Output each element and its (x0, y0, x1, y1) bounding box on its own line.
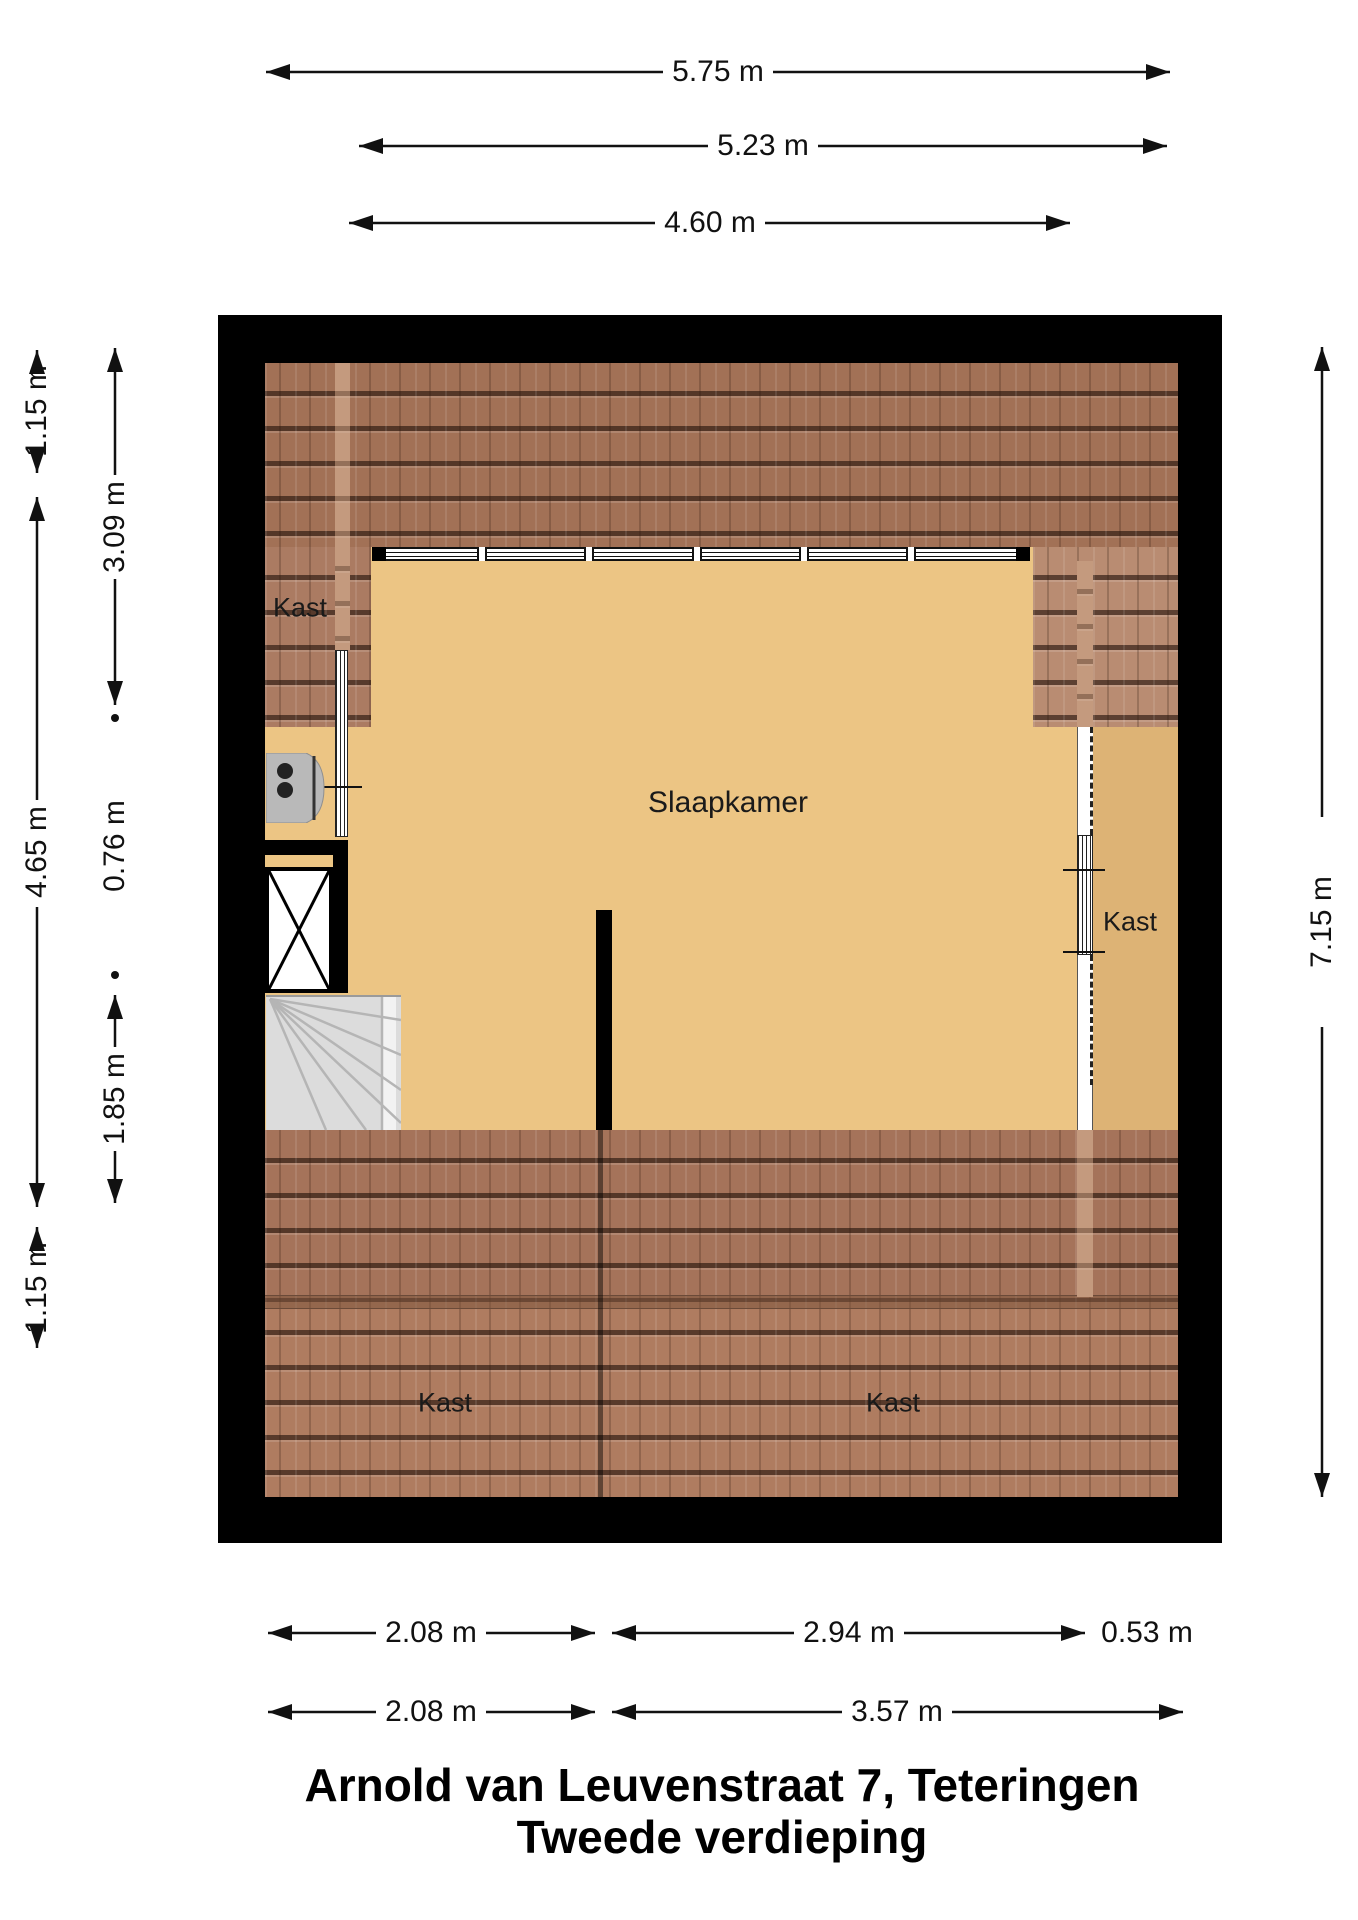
railing-divider (799, 547, 809, 561)
dim-label-bottom2-1: 2.08 m (385, 1695, 477, 1729)
left-dormer-strip (335, 363, 350, 650)
dim-dot (111, 714, 119, 722)
roof-left-closet (265, 547, 371, 727)
dim-label-left-inner-1: 3.09 m (98, 481, 132, 573)
railing-divider (584, 547, 594, 561)
dim-label-top-2: 5.23 m (717, 129, 809, 163)
railing-end-cap (372, 547, 386, 561)
wall-segment (333, 855, 348, 993)
roof-ridge-seam (265, 1295, 1178, 1309)
dim-label-bottom1-3: 0.53 m (1101, 1616, 1193, 1650)
right-window-dashed-bottom (1077, 955, 1093, 1085)
dim-label-left-inner-2: 0.76 m (98, 800, 132, 892)
staircase (266, 995, 401, 1130)
railing-divider (477, 547, 487, 561)
floorplan-page: Slaapkamer Kast Kast Kast Kast (0, 0, 1358, 1920)
railing-end-cap (1016, 547, 1030, 561)
room-label-closet-top-left: Kast (273, 593, 327, 624)
left-window-tick (322, 786, 362, 788)
dim-label-top-3: 4.60 m (664, 206, 756, 240)
dim-label-left-outer-2: 4.65 m (20, 806, 54, 898)
room-label-bedroom: Slaapkamer (648, 786, 808, 820)
sink (266, 753, 326, 823)
right-window-dashed-top (1077, 727, 1093, 835)
page-title-line2: Tweede verdieping (517, 1810, 928, 1864)
right-window-tick (1063, 951, 1105, 953)
divider-wall (596, 910, 612, 1130)
room-label-closet-bottom-left: Kast (418, 1388, 472, 1419)
dim-label-right-1: 7.15 m (1305, 876, 1339, 968)
right-window-frame (1077, 1085, 1093, 1130)
page-title-line1: Arnold van Leuvenstraat 7, Teteringen (304, 1758, 1139, 1812)
room-label-closet-bottom-right: Kast (866, 1388, 920, 1419)
dim-label-bottom1-2: 2.94 m (803, 1616, 895, 1650)
right-dormer-strip-bottom (1077, 1130, 1093, 1297)
dim-label-left-inner-3: 1.85 m (98, 1053, 132, 1145)
roof-top (265, 363, 1178, 547)
dim-label-bottom2-2: 3.57 m (851, 1695, 943, 1729)
railing-divider (906, 547, 916, 561)
left-window (335, 650, 348, 837)
right-window-tick (1063, 869, 1105, 871)
dim-label-bottom1-1: 2.08 m (385, 1616, 477, 1650)
wall-segment (265, 840, 348, 855)
room-label-closet-right: Kast (1103, 907, 1157, 938)
right-dormer-strip-top (1077, 561, 1093, 727)
roof-bottom-lower (265, 1302, 1178, 1497)
dim-label-top-1: 5.75 m (672, 55, 764, 89)
railing (372, 547, 1030, 561)
divider-wall-roof-seam (598, 1130, 603, 1497)
right-window (1077, 835, 1093, 955)
dim-label-left-outer-3: 1.15 m (20, 1242, 54, 1334)
shaft-box (265, 867, 333, 993)
roof-right (1033, 547, 1178, 727)
dim-dot (111, 971, 119, 979)
railing-divider (692, 547, 702, 561)
roof-bottom-upper (265, 1130, 1178, 1302)
dim-label-left-outer-1: 1.15 m (20, 365, 54, 457)
